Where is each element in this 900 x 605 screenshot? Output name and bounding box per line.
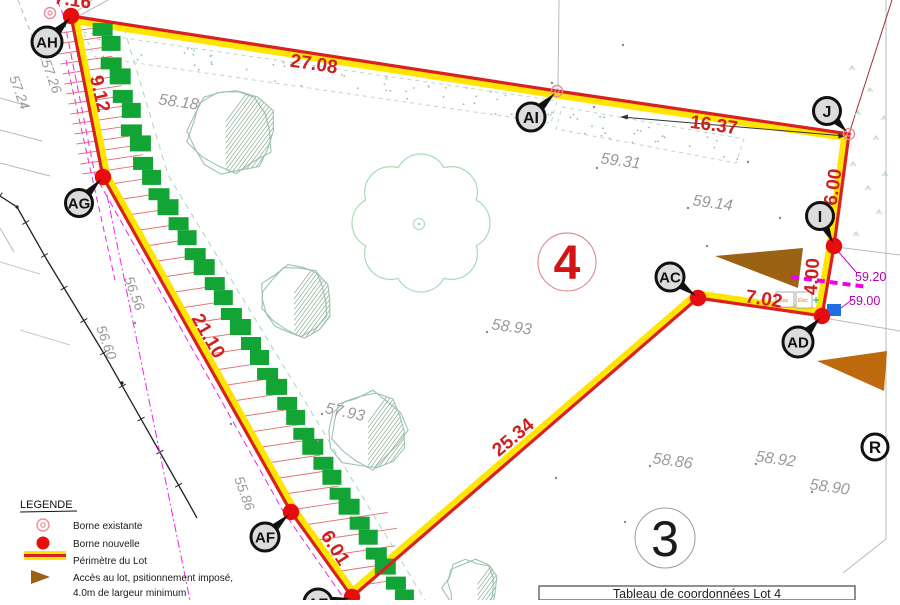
svg-text:4.00: 4.00 (801, 257, 825, 295)
svg-text:Borne existante: Borne existante (73, 521, 143, 532)
svg-text:Périmètre du Lot: Périmètre du Lot (73, 556, 147, 567)
svg-text:AE: AE (308, 595, 329, 600)
svg-text:Tableau de coordonnées Lot 4: Tableau de coordonnées Lot 4 (613, 587, 781, 600)
svg-text:Elec: Elec (798, 298, 808, 304)
svg-text:AD: AD (787, 334, 809, 351)
svg-text:R: R (869, 438, 881, 457)
svg-text:AG: AG (68, 195, 91, 212)
svg-text:4.0m de largeur minimum: 4.0m de largeur minimum (73, 588, 186, 599)
svg-text:AI: AI (523, 110, 539, 127)
svg-text:Borne nouvelle: Borne nouvelle (73, 539, 140, 550)
svg-text:4: 4 (554, 237, 581, 290)
svg-text:59.20: 59.20 (855, 270, 886, 284)
svg-text:J: J (823, 104, 832, 121)
svg-text:AC: AC (659, 269, 681, 286)
svg-text:Accès au lot, psitionnement im: Accès au lot, psitionnement imposé, (73, 573, 233, 584)
svg-text:AH: AH (36, 34, 58, 51)
svg-text:59.00: 59.00 (849, 294, 880, 308)
svg-text:AF: AF (255, 529, 275, 546)
svg-text:I: I (818, 209, 822, 226)
svg-text:LEGENDE: LEGENDE (20, 499, 73, 511)
svg-text:3: 3 (651, 511, 679, 567)
